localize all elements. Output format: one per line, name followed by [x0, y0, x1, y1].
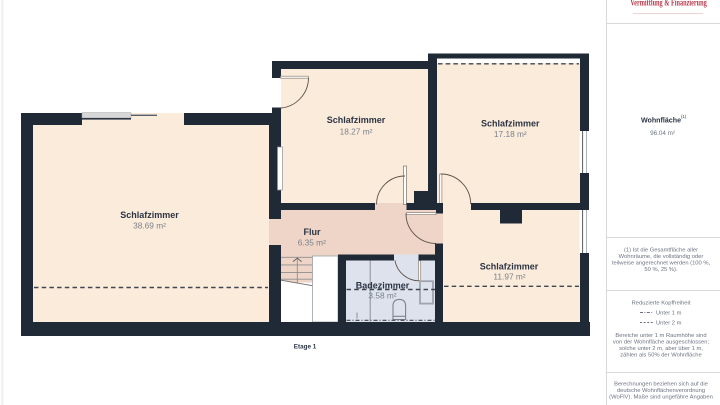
svg-text:zählen als 50% der Wohnfläche: zählen als 50% der Wohnfläche — [620, 353, 701, 359]
svg-text:Vermittlung & Finanzierung: Vermittlung & Finanzierung — [630, 0, 707, 8]
svg-text:96.04 m²: 96.04 m² — [650, 130, 675, 137]
svg-text:3.58 m²: 3.58 m² — [368, 291, 396, 301]
svg-text:Badezimmer: Badezimmer — [356, 280, 410, 290]
svg-text:Schlafzimmer: Schlafzimmer — [120, 210, 179, 220]
svg-text:solche unter 2 m, aber über 1: solche unter 2 m, aber über 1 m, — [619, 346, 703, 352]
svg-text:Etage 1: Etage 1 — [294, 344, 317, 351]
svg-text:18.27 m²: 18.27 m² — [340, 126, 373, 136]
svg-text:Unter 2 m: Unter 2 m — [656, 321, 682, 327]
svg-text:Unter 1 m: Unter 1 m — [656, 311, 682, 317]
svg-text:17.18 m²: 17.18 m² — [494, 129, 527, 139]
svg-text:Wohnräume, die vollständig ode: Wohnräume, die vollständig oder — [619, 254, 704, 260]
svg-text:11.97 m²: 11.97 m² — [493, 271, 525, 281]
svg-text:38.69 m²: 38.69 m² — [133, 221, 166, 231]
svg-text:deutsche Wohnflächenverordnung: deutsche Wohnflächenverordnung — [617, 388, 705, 394]
svg-text:Flur: Flur — [304, 227, 321, 237]
svg-text:(1): (1) — [681, 114, 687, 119]
svg-text:6.35 m²: 6.35 m² — [298, 238, 326, 248]
svg-text:Wohnfläche: Wohnfläche — [641, 117, 681, 125]
svg-text:(1) Ist die Gesamtfläche aller: (1) Ist die Gesamtfläche aller — [624, 248, 698, 254]
svg-text:Schlafzimmer: Schlafzimmer — [481, 119, 540, 129]
svg-text:(WoFlV). Maße sind ungefähre A: (WoFlV). Maße sind ungefähre Angaben — [609, 395, 713, 401]
svg-text:von der Wohnfläche ausgeschlos: von der Wohnfläche ausgeschlossen; — [613, 340, 710, 346]
svg-text:teilweise angerechnet werden (: teilweise angerechnet werden (100 %, — [612, 261, 711, 267]
svg-text:50 %, 25 %).: 50 %, 25 %). — [644, 267, 678, 273]
svg-text:Schlafzimmer: Schlafzimmer — [480, 261, 539, 271]
svg-text:Berechnungen beziehen sich auf: Berechnungen beziehen sich auf die — [614, 382, 708, 388]
svg-text:Reduzierte Kopffreiheit: Reduzierte Kopffreiheit — [632, 301, 691, 307]
svg-text:Bereiche unter 1 m Raumhöhe si: Bereiche unter 1 m Raumhöhe sind — [615, 333, 706, 339]
svg-text:Schlafzimmer: Schlafzimmer — [327, 115, 386, 125]
